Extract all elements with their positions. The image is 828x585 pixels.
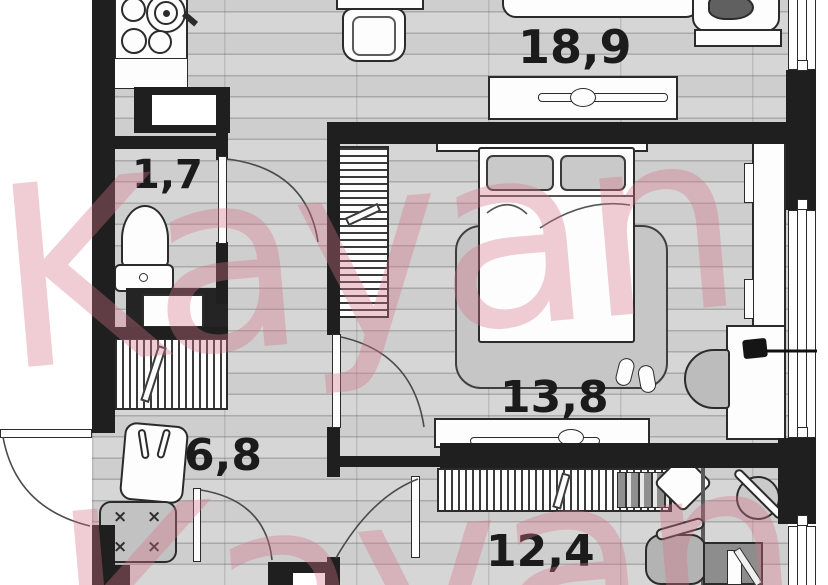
floor-plan: × × × × <box>0 0 828 585</box>
area-label-living: 18,9 <box>518 20 632 74</box>
area-label-bathroom: 1,7 <box>132 152 203 198</box>
area-label-bedroom: 13,8 <box>500 372 609 423</box>
area-label-room2: 12,4 <box>486 526 595 577</box>
area-label-hallway: 6,8 <box>184 430 262 481</box>
door-swing-arcs <box>0 0 828 585</box>
